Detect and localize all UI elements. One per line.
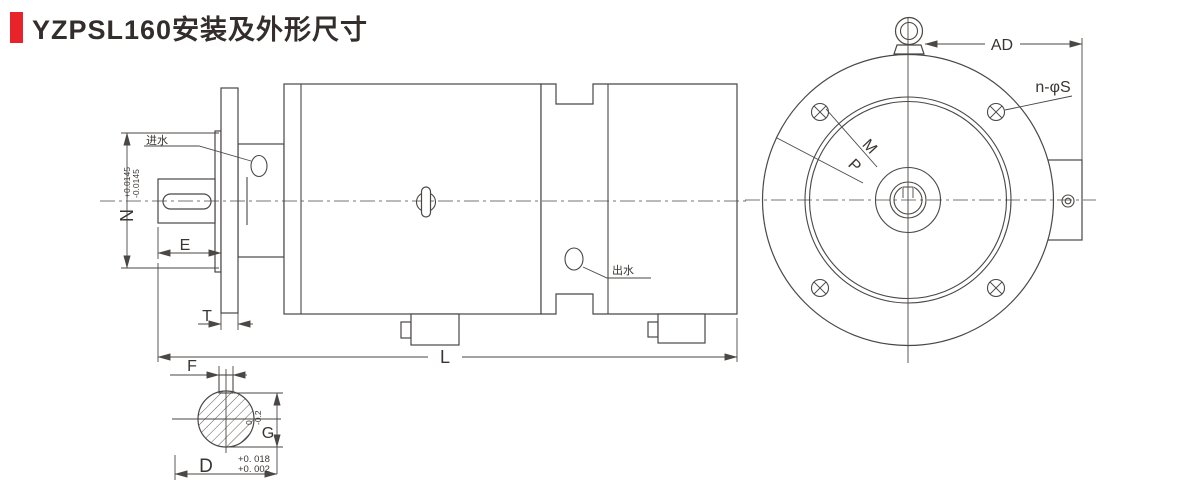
junction-box-tab [401,322,411,338]
inlet-label: 进水 [146,134,168,147]
dim-N-label: N [117,209,137,222]
drawing-page: YZPSL160安装及外形尺寸 [0,0,1198,496]
dim-D-tol-lower: +0. 002 [238,464,270,475]
bearing-hub [238,144,284,257]
lifting-eye [894,18,924,55]
mounting-flange [221,88,238,313]
dim-D: D +0. 018 +0. 002 [175,454,277,480]
dim-T-label: T [202,308,212,325]
dim-F: F [170,358,247,377]
outlet-label: 出水 [612,263,634,277]
shaft-keyway [163,194,211,209]
shaft-section-detail: F G 0 -0.2 D [170,358,283,480]
motor-rear-section [541,84,737,314]
page-title: YZPSL160安装及外形尺寸 [10,8,368,47]
dim-E-label: E [180,237,191,254]
title-text: YZPSL160安装及外形尺寸 [32,8,368,47]
dim-G-tol-lower: -0.2 [253,410,263,425]
dim-G-label: G [262,425,274,442]
motor-side-view: 进水 出水 N +0.0145 -0.0145 [100,84,748,367]
dim-holes-label: n-φS [1035,79,1070,96]
junction-box-rear [658,314,705,343]
dim-F-label: F [187,358,197,375]
title-accent-bar [10,12,23,43]
dim-D-label: D [199,456,213,477]
motor-front-view: AD n-φS M P [745,17,1096,363]
dim-AD-label: AD [991,37,1013,54]
dim-L-label: L [440,347,450,367]
dim-N-tol-lower: -0.0145 [131,169,141,198]
motor-body [284,84,541,314]
technical-drawing: 进水 出水 N +0.0145 -0.0145 [0,0,1198,496]
junction-box-tab-rear [648,322,658,337]
junction-box-front [411,314,459,345]
dim-E: E [158,227,221,259]
